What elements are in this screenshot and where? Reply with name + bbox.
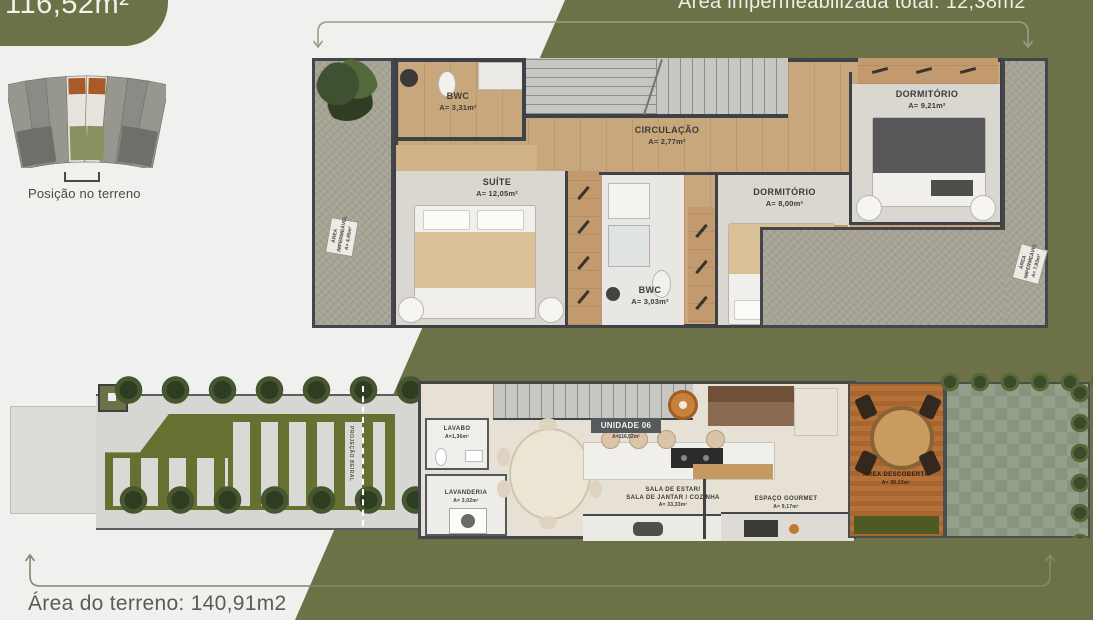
bowl-icon	[789, 524, 799, 534]
stool-icon	[706, 430, 725, 449]
nightstand-icon	[398, 297, 424, 323]
room-lavabo: LAVABO A=1,36m²	[425, 418, 489, 470]
room-label-sala: SALA DE ESTAR/ SALA DE JANTAR / COZINHA …	[608, 487, 738, 508]
room-label-lavanderia: LAVANDERIA A= 3,02m²	[431, 490, 501, 504]
sofa-seat-icon	[708, 402, 794, 426]
terreno-area-text: Área do terreno: 140,91m2	[28, 592, 287, 616]
nightstand-icon	[538, 297, 564, 323]
room-label-circulacao: CIRCULAÇÃO A= 2,77m²	[612, 125, 722, 146]
stairs-upper-right	[656, 58, 788, 118]
closet-suite	[568, 171, 602, 325]
wall	[522, 58, 526, 141]
nightstand-icon	[856, 195, 882, 221]
bed-dorm-right-icon	[872, 117, 986, 207]
projection-dashed-line	[362, 386, 364, 526]
room-label-descoberta: ÁREA DESCOBERTA A= 36,13m²	[856, 472, 936, 486]
wall	[849, 222, 1003, 225]
bed-suite-icon	[414, 205, 536, 319]
plant-icon	[316, 59, 378, 121]
floorplan-page: 116,52m² Área impermeabilizada total: 12…	[0, 0, 1093, 620]
deck-grass-strip	[854, 516, 939, 534]
ground-floor-plan: PROJEÇÃO BEIRAL LAVABO A=1,36m² LAVANDER…	[10, 378, 1090, 545]
grass-strip-right	[1002, 58, 1048, 328]
washer-icon	[449, 508, 487, 534]
room-label-suite: SUÍTE A= 12,05m²	[442, 177, 552, 198]
projecao-beiral-label: PROJEÇÃO BEIRAL	[348, 426, 354, 496]
room-label-dormitorio-right: DORMITÓRIO A= 9,21m²	[872, 89, 982, 110]
stairs-ground	[493, 384, 693, 420]
wardrobe-dorm-mid	[688, 207, 718, 322]
nightstand-icon	[970, 195, 996, 221]
wall	[396, 137, 526, 141]
shrub-row-top	[105, 372, 435, 408]
kitchen-sink-icon	[633, 522, 663, 536]
chaise-icon	[794, 388, 838, 436]
pendant-light-icon	[400, 69, 418, 87]
wood-bench-icon	[693, 464, 773, 479]
top-width-bracket	[314, 22, 1033, 47]
room-label-bwc-top: BWC A= 3,31m²	[408, 91, 508, 112]
sofa-back-icon	[708, 386, 794, 402]
room-label-lavabo: LAVABO A=1,36m²	[428, 426, 486, 440]
grill-icon	[744, 520, 778, 537]
sink-icon	[465, 450, 483, 462]
shower-icon	[608, 225, 650, 267]
room-label-bwc-bottom: BWC A= 3,03m²	[618, 285, 682, 306]
unidade-area-text: A=116,52m²	[591, 434, 661, 440]
unidade-badge: UNIDADE 06	[591, 418, 661, 433]
house-ground-floor: LAVABO A=1,36m² LAVANDERIA A= 3,02m²	[418, 381, 856, 539]
bottom-width-bracket	[26, 555, 1055, 586]
stairs-upper-left	[526, 58, 656, 118]
street-pad	[10, 406, 100, 514]
suite-headboard-wall	[396, 145, 537, 171]
room-lavanderia: LAVANDERIA A= 3,02m²	[425, 474, 507, 536]
dining-table-icon	[509, 428, 591, 520]
grass-block-bottom-right	[760, 227, 1005, 328]
room-label-dormitorio-mid: DORMITÓRIO A= 8,00m²	[732, 187, 837, 208]
room-label-gourmet: ESPAÇO GOURMET A= 9,17m²	[736, 496, 836, 510]
shrub-row-bottom	[110, 482, 440, 518]
ivy-right	[1068, 378, 1093, 538]
toilet-icon	[435, 448, 447, 466]
deck-area-descoberta: ÁREA DESCOBERTA A= 36,13m²	[848, 382, 945, 538]
sink-counter-icon	[478, 62, 526, 90]
sink-counter-icon	[608, 183, 650, 219]
kitchen-counter	[583, 514, 723, 541]
upper-floor-plan: ÁREA IMPERMEÁVEL A= 4,45m² BWC A= 3,31m²…	[312, 55, 1048, 332]
closet-dorm-right	[858, 58, 998, 84]
fire-pit-icon	[668, 390, 698, 420]
gourmet-counter	[721, 512, 854, 541]
deck-chair-icon	[854, 394, 878, 421]
